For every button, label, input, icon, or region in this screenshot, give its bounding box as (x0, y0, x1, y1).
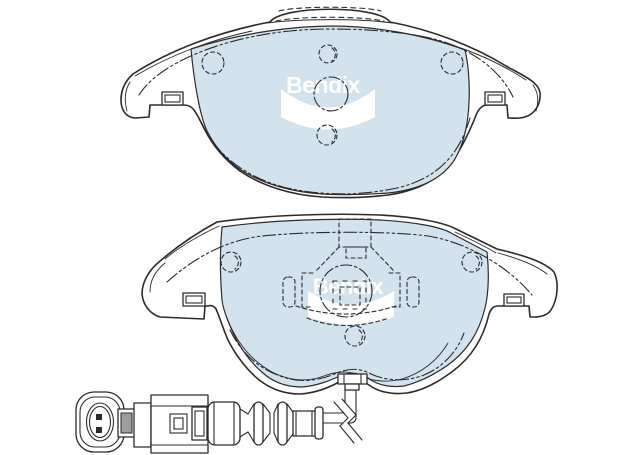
bendix-logo-text-upper: Bendix (286, 72, 360, 98)
plug-pin-top (96, 414, 102, 420)
upper-brake-pad: Bendix (121, 7, 540, 197)
illustration-canvas: Bendix (0, 0, 639, 455)
brake-pad-set-illustration: Bendix (0, 0, 639, 455)
housing-male-end (192, 407, 207, 440)
boot-bulge-1 (254, 402, 263, 445)
plug-latch-shade (121, 413, 132, 433)
boot-neck (240, 409, 248, 437)
sensor-mount-bracket (338, 374, 367, 384)
lower-brake-pad: Bendix (142, 214, 557, 394)
upper-pad-right-lug-tab (485, 92, 505, 105)
connector-housing (134, 395, 208, 453)
wear-sensor-assembly (76, 390, 362, 453)
boot-flange (315, 407, 323, 439)
sensor-mount-stub (345, 384, 359, 390)
upper-pad-left-lug-tab (162, 92, 183, 105)
lower-pad-right-lug-tab (504, 294, 524, 306)
boot-valley (270, 413, 274, 433)
plug-pin-bottom (96, 427, 102, 433)
sensor-mount (338, 374, 367, 390)
lower-pad-left-lug-tab (183, 293, 205, 306)
sensor-plug-connector (76, 392, 135, 452)
boot-bulge-2 (278, 402, 287, 445)
lower-pad-friction-material (221, 219, 489, 387)
plug-outer-shell (76, 392, 124, 452)
boot-barrel (208, 402, 240, 445)
rubber-boot (208, 402, 323, 445)
wire-break-symbol (333, 398, 362, 443)
housing-neck (134, 403, 151, 447)
